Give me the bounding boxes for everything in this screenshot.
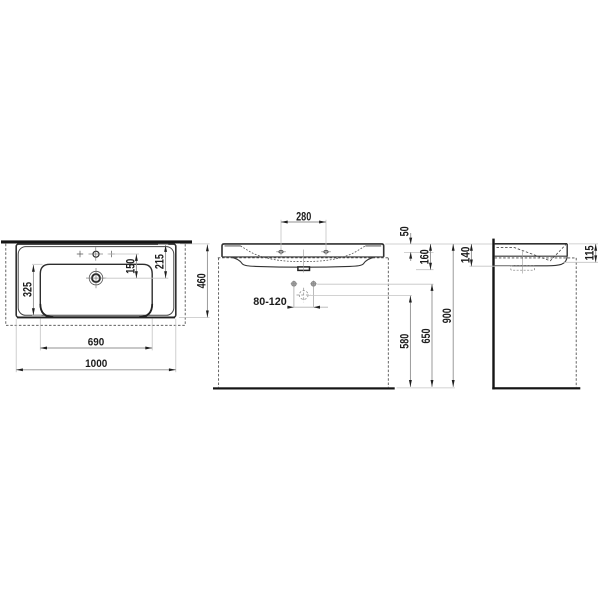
svg-text:80-120: 80-120	[253, 296, 287, 308]
svg-text:280: 280	[296, 209, 312, 223]
svg-text:460: 460	[194, 273, 208, 288]
svg-text:215: 215	[152, 254, 166, 269]
svg-text:1000: 1000	[85, 358, 107, 370]
svg-text:650: 650	[419, 328, 433, 343]
svg-text:325: 325	[21, 282, 35, 297]
svg-text:50: 50	[398, 226, 412, 236]
svg-text:900: 900	[440, 308, 454, 323]
svg-text:690: 690	[88, 336, 105, 348]
svg-text:580: 580	[397, 334, 411, 349]
svg-text:140: 140	[458, 246, 472, 263]
svg-text:150: 150	[123, 259, 137, 274]
svg-text:115: 115	[583, 245, 597, 260]
svg-text:160: 160	[418, 249, 432, 264]
